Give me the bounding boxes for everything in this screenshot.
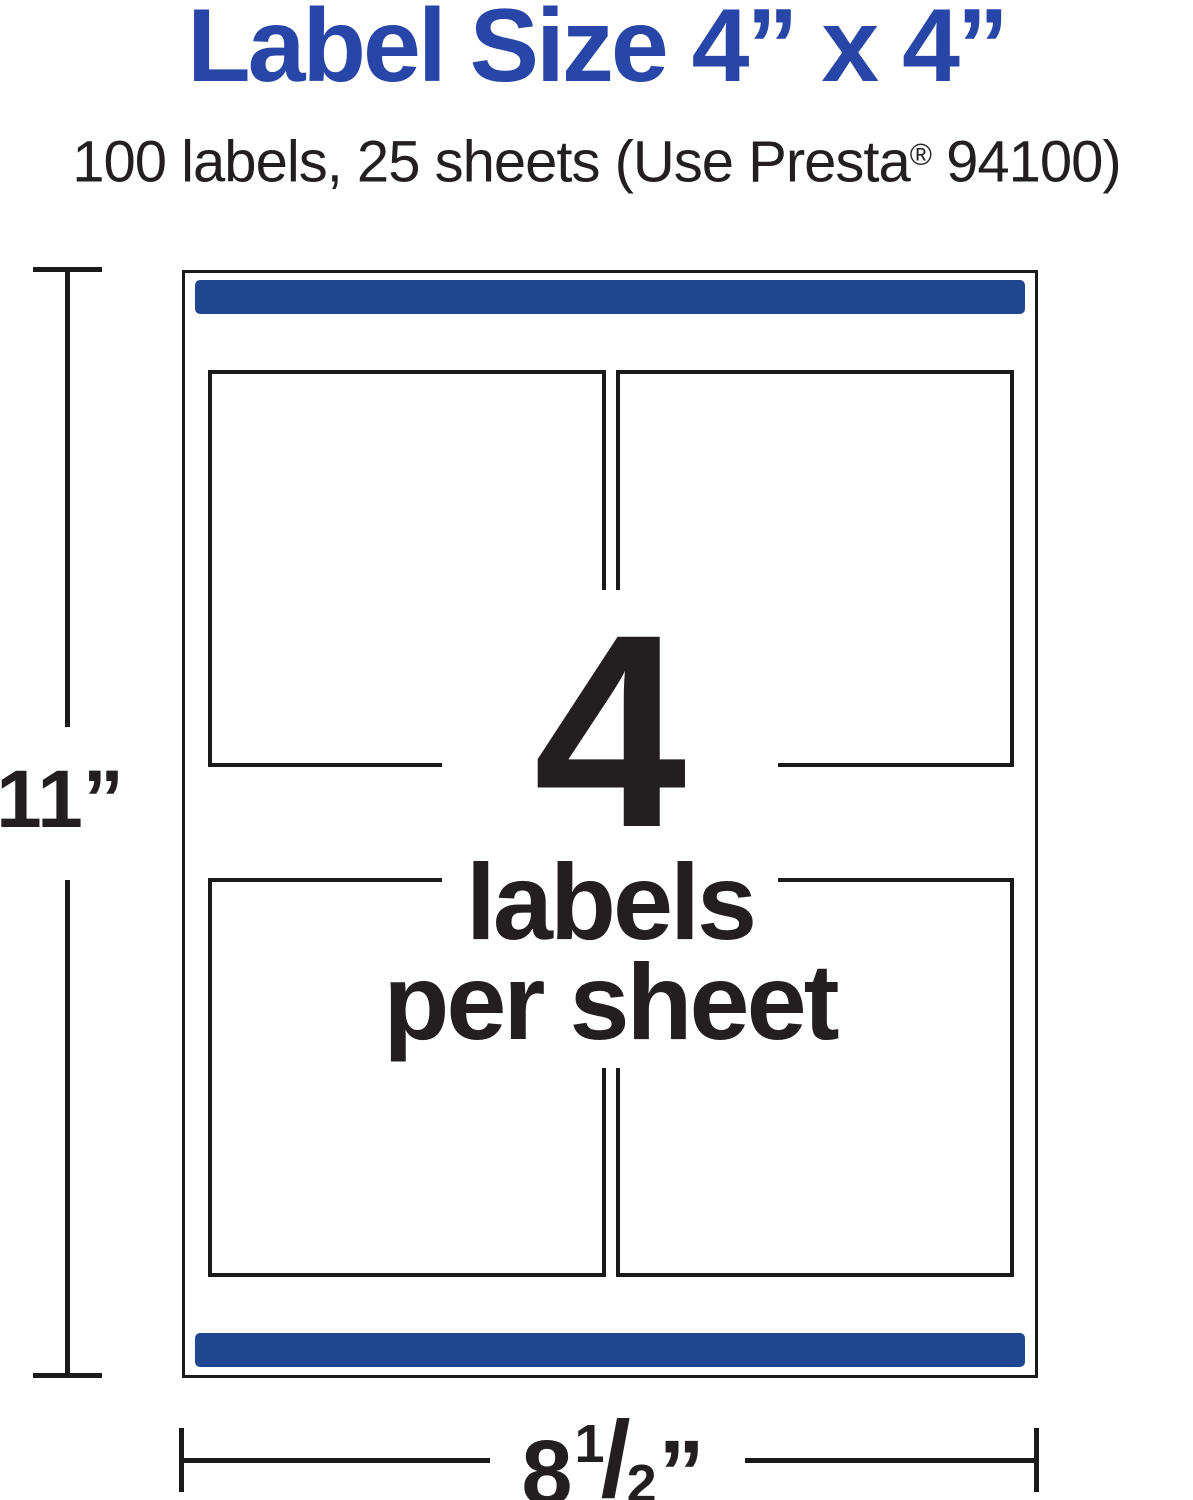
labels-word: labels bbox=[466, 848, 754, 956]
label-product-diagram: Label Size 4” x 4” 100 labels, 25 sheets… bbox=[0, 0, 1193, 1500]
subtitle-sku: 94100) bbox=[931, 130, 1121, 195]
height-dim-line-upper bbox=[65, 272, 70, 727]
width-dim-label: 81/2” bbox=[521, 1404, 704, 1500]
subtitle-text: 100 labels, 25 sheets (Use Presta bbox=[72, 130, 909, 195]
registered-trademark-symbol: ® bbox=[910, 139, 931, 172]
labels-count: 4 bbox=[534, 612, 687, 852]
width-unit-inches: ” bbox=[659, 1422, 705, 1500]
page-subtitle: 100 labels, 25 sheets (Use Presta® 94100… bbox=[0, 124, 1193, 195]
height-dim-line-lower bbox=[65, 880, 70, 1373]
width-dim-line-left bbox=[182, 1458, 490, 1463]
page-title: Label Size 4” x 4” bbox=[0, 0, 1193, 100]
width-dim-line-right bbox=[745, 1458, 1038, 1463]
height-dim-bottom-tick bbox=[33, 1373, 102, 1378]
height-dim-label: 11” bbox=[0, 755, 124, 845]
sheet-top-color-bar bbox=[195, 280, 1025, 314]
per-sheet-word: per sheet bbox=[383, 948, 836, 1056]
sheet-bottom-color-bar bbox=[195, 1333, 1025, 1367]
width-whole-number: 8 bbox=[521, 1422, 572, 1500]
width-dim-right-tick bbox=[1034, 1428, 1039, 1492]
width-fraction-denominator: 2 bbox=[627, 1454, 657, 1500]
